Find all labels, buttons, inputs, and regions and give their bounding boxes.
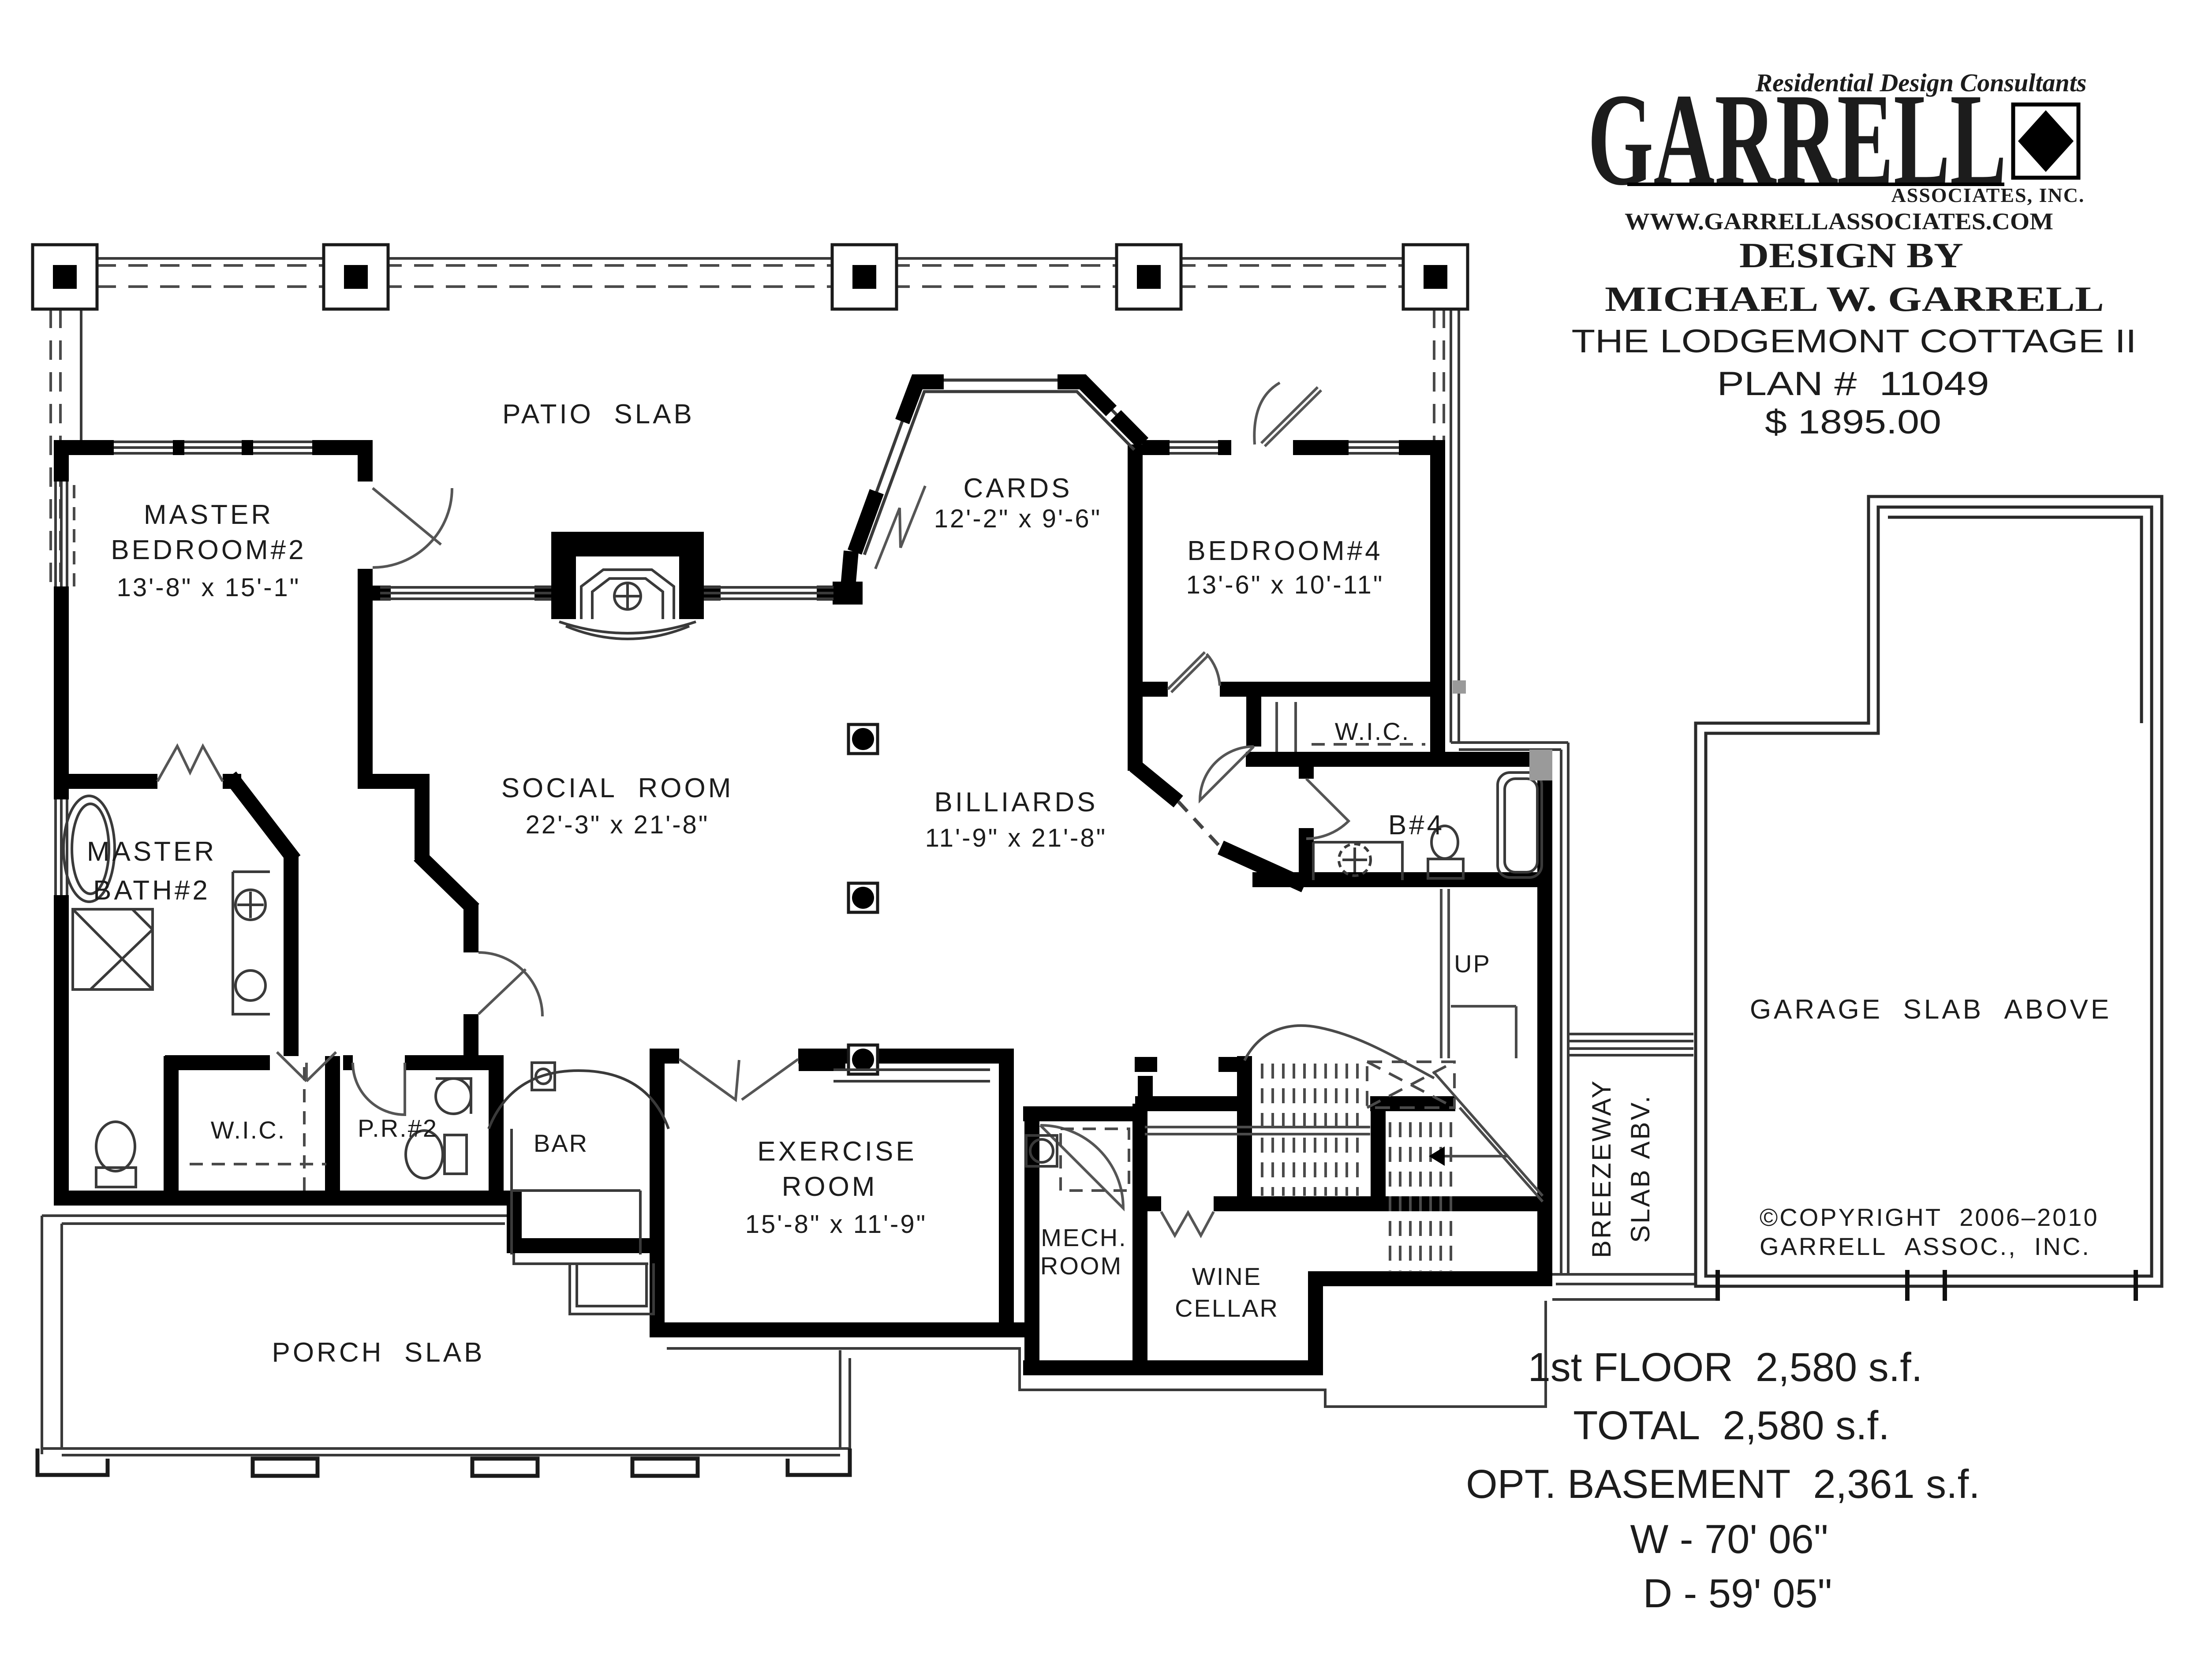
svg-text:12'-2" x 9'-6": 12'-2" x 9'-6" <box>934 504 1102 533</box>
svg-text:BREEZEWAY: BREEZEWAY <box>1587 1079 1616 1258</box>
svg-text:1st FLOOR 2,580 s.f.: 1st FLOOR 2,580 s.f. <box>1528 1345 1923 1390</box>
svg-text:GARAGE SLAB ABOVE: GARAGE SLAB ABOVE <box>1750 994 2112 1025</box>
svg-text:BATH#2: BATH#2 <box>93 875 210 906</box>
svg-text:D - 59' 05": D - 59' 05" <box>1643 1571 1832 1616</box>
svg-text:BEDROOM#4: BEDROOM#4 <box>1187 536 1383 566</box>
svg-text:BEDROOM#2: BEDROOM#2 <box>111 535 306 565</box>
svg-text:B#4: B#4 <box>1388 810 1445 840</box>
svg-text:13'-6" x 10'-11": 13'-6" x 10'-11" <box>1186 571 1384 599</box>
svg-text:ROOM: ROOM <box>1040 1252 1122 1280</box>
svg-text:ASSOCIATES, INC.: ASSOCIATES, INC. <box>1891 184 2085 206</box>
svg-text:MECH.: MECH. <box>1041 1224 1127 1251</box>
svg-text:EXERCISE: EXERCISE <box>757 1136 917 1167</box>
svg-text:15'-8" x 11'-9": 15'-8" x 11'-9" <box>745 1210 927 1239</box>
svg-text:DESIGN BY: DESIGN BY <box>1739 236 1963 275</box>
svg-text:THE LODGEMONT COTTAGE II: THE LODGEMONT COTTAGE II <box>1572 323 2137 359</box>
svg-text:W - 70' 06": W - 70' 06" <box>1630 1517 1828 1562</box>
svg-text:MASTER: MASTER <box>87 836 217 867</box>
svg-text:PATIO SLAB: PATIO SLAB <box>502 399 695 429</box>
svg-text:©COPYRIGHT 2006–2010: ©COPYRIGHT 2006–2010 <box>1760 1203 2099 1231</box>
svg-text:TOTAL 2,580 s.f.: TOTAL 2,580 s.f. <box>1573 1403 1890 1448</box>
svg-text:WINE: WINE <box>1192 1262 1262 1290</box>
svg-text:13'-8" x 15'-1": 13'-8" x 15'-1" <box>117 573 301 602</box>
svg-text:MICHAEL W. GARRELL: MICHAEL W. GARRELL <box>1605 280 2104 319</box>
svg-text:CELLAR: CELLAR <box>1175 1294 1279 1322</box>
svg-text:W.I.C.: W.I.C. <box>211 1116 286 1144</box>
svg-text:WWW.GARRELLASSOCIATES.COM: WWW.GARRELLASSOCIATES.COM <box>1625 208 2053 235</box>
svg-text:P.R.#2: P.R.#2 <box>358 1114 438 1142</box>
svg-text:ROOM: ROOM <box>782 1172 878 1202</box>
svg-text:CARDS: CARDS <box>963 473 1072 504</box>
svg-text:GARRELL ASSOC., INC.: GARRELL ASSOC., INC. <box>1760 1232 2091 1260</box>
svg-text:OPT. BASEMENT 2,361 s.f.: OPT. BASEMENT 2,361 s.f. <box>1466 1462 1980 1507</box>
svg-text:BAR: BAR <box>534 1129 588 1157</box>
svg-text:SOCIAL ROOM: SOCIAL ROOM <box>501 773 734 803</box>
svg-text:PORCH SLAB: PORCH SLAB <box>272 1337 485 1368</box>
svg-text:UP: UP <box>1454 950 1491 978</box>
svg-text:PLAN # 11049: PLAN # 11049 <box>1717 365 1989 403</box>
svg-text:W.I.C.: W.I.C. <box>1335 717 1410 745</box>
svg-text:$ 1895.00: $ 1895.00 <box>1765 403 1941 441</box>
svg-text:BILLIARDS: BILLIARDS <box>934 787 1098 818</box>
svg-text:SLAB ABV.: SLAB ABV. <box>1626 1094 1655 1243</box>
svg-text:MASTER: MASTER <box>144 500 273 530</box>
svg-text:22'-3" x 21'-8": 22'-3" x 21'-8" <box>526 810 710 839</box>
svg-text:11'-9" x 21'-8": 11'-9" x 21'-8" <box>925 824 1107 852</box>
